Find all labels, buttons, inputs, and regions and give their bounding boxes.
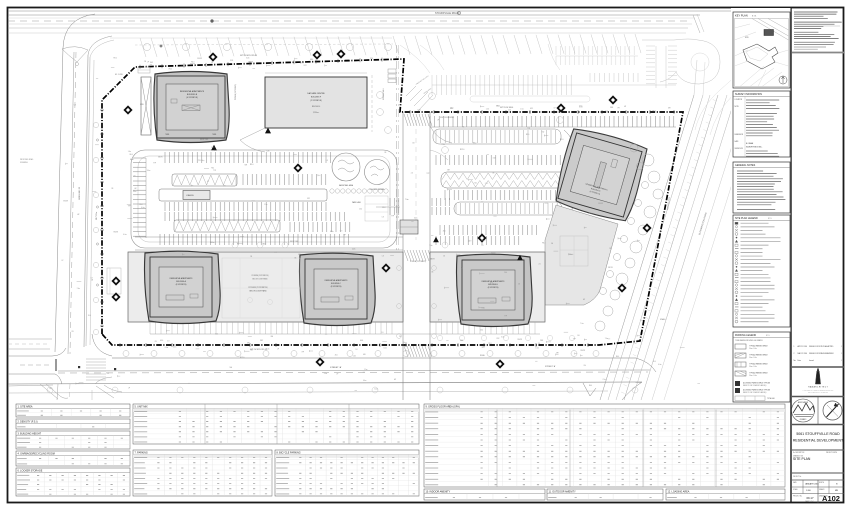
svg-text:CB: CB — [111, 188, 113, 190]
svg-text:BUILDING C: BUILDING C — [331, 283, 341, 285]
svg-text:LP: LP — [554, 108, 556, 110]
svg-text:22.6: 22.6 — [370, 58, 373, 60]
svg-text:TYP: TYP — [504, 315, 507, 317]
svg-text:R12: R12 — [304, 65, 307, 67]
svg-text:26.0: 26.0 — [211, 147, 214, 149]
svg-text:SNOW: SNOW — [197, 58, 202, 60]
svg-text:LP: LP — [277, 349, 279, 351]
svg-text:SNOW: SNOW — [158, 156, 163, 158]
svg-text:R9.0: R9.0 — [114, 58, 117, 60]
svg-text:SNOW: SNOW — [63, 201, 68, 203]
svg-text:2.6: 2.6 — [481, 245, 483, 247]
svg-text:TYP: TYP — [391, 216, 394, 218]
svg-text:LP: LP — [184, 66, 186, 68]
svg-text:TYP: TYP — [527, 128, 530, 130]
svg-text:FH: FH — [618, 108, 620, 110]
svg-text:R6.0: R6.0 — [589, 385, 592, 387]
svg-text:HP: HP — [624, 106, 626, 108]
svg-text:2.6m x 5.8m: 2.6m x 5.8m — [749, 348, 757, 350]
svg-text:TERR.: TERR. — [165, 134, 170, 136]
svg-text:2.6m x 5.8m: 2.6m x 5.8m — [749, 375, 757, 377]
svg-text:5.8: 5.8 — [167, 340, 169, 342]
svg-text:26.0: 26.0 — [482, 347, 485, 349]
svg-text:9. GROSS FLOOR AREA (GFA): 9. GROSS FLOOR AREA (GFA) — [426, 405, 460, 408]
svg-text:SURVEYING INC.: SURVEYING INC. — [746, 147, 763, 149]
svg-text:7. PARKING: 7. PARKING — [135, 451, 148, 454]
svg-text:FH: FH — [551, 243, 553, 245]
svg-text:No. DESCRIPTION: No. DESCRIPTION — [793, 452, 804, 454]
svg-text:SNOW: SNOW — [248, 62, 253, 64]
svg-text:26.0: 26.0 — [508, 110, 511, 112]
svg-text:26.0: 26.0 — [359, 209, 362, 211]
svg-text:5.8: 5.8 — [443, 255, 445, 257]
svg-text:HP: HP — [302, 352, 304, 354]
svg-text:SNOW: SNOW — [517, 339, 522, 341]
svg-text:34.2: 34.2 — [150, 62, 153, 64]
svg-text:HP: HP — [344, 235, 346, 237]
svg-text:1: 1 — [794, 346, 795, 348]
svg-text:MH: MH — [482, 355, 484, 357]
svg-text:R9.0: R9.0 — [560, 139, 563, 141]
svg-text:PROJECT No.: PROJECT No. — [793, 476, 802, 478]
svg-text:FIRE: FIRE — [140, 104, 144, 106]
svg-text:3. BUILDING HEIGHT: 3. BUILDING HEIGHT — [18, 432, 42, 435]
svg-text:R9.0: R9.0 — [542, 243, 545, 245]
svg-text:2.6m x 5.8m: 2.6m x 5.8m — [749, 357, 757, 359]
svg-text:R9.0: R9.0 — [473, 142, 476, 144]
svg-text:MH: MH — [496, 105, 498, 107]
svg-text:26.0m: 26.0m — [210, 242, 215, 244]
svg-text:12. LOADING AREA: 12. LOADING AREA — [668, 490, 690, 493]
svg-text:TYP: TYP — [153, 163, 156, 165]
svg-text:LP: LP — [62, 260, 64, 262]
svg-text:SHEET 1 OF 1: SHEET 1 OF 1 — [805, 501, 814, 503]
svg-text:HP: HP — [77, 214, 79, 216]
svg-text:STREET 'A': STREET 'A' — [545, 365, 556, 368]
svg-text:LP: LP — [107, 373, 109, 375]
svg-text:4. GARBAGE/RECYCLING ROOM: 4. GARBAGE/RECYCLING ROOM — [18, 452, 55, 455]
svg-text:(2 STOREYS): (2 STOREYS) — [310, 100, 322, 102]
svg-text:SITE: SITE — [745, 37, 749, 39]
svg-text:CB: CB — [91, 279, 93, 281]
svg-text:N72°10'E 188.6: N72°10'E 188.6 — [500, 107, 513, 109]
svg-text:1. SITE AREA: 1. SITE AREA — [18, 405, 33, 408]
svg-text:R6.0: R6.0 — [263, 244, 266, 246]
svg-text:MH: MH — [363, 354, 365, 356]
svg-text:HP: HP — [135, 188, 137, 190]
svg-text:R12.0: R12.0 — [460, 149, 464, 151]
svg-text:2: 2 — [794, 353, 795, 355]
svg-text:(4 STOREYS): (4 STOREYS) — [186, 97, 198, 99]
svg-text:#: # — [841, 360, 842, 362]
svg-text:R6.0: R6.0 — [653, 111, 656, 113]
svg-text:26.0: 26.0 — [88, 315, 91, 317]
svg-text:1:200: 1:200 — [806, 490, 811, 492]
svg-text:PODIUM (2 STOREYS): PODIUM (2 STOREYS) — [252, 275, 269, 277]
svg-text:R9.0: R9.0 — [526, 134, 529, 136]
svg-text:BUILDING B: BUILDING B — [187, 94, 198, 96]
svg-text:R A W A R C H I T E C T: R A W A R C H I T E C T — [808, 386, 828, 389]
svg-text:FH: FH — [578, 335, 580, 337]
svg-text:CB: CB — [294, 257, 296, 259]
svg-text:MH: MH — [668, 108, 670, 110]
svg-text:WIDENING: WIDENING — [20, 162, 28, 164]
svg-text:RESIDENTIAL APARTMENTS: RESIDENTIAL APARTMENTS — [325, 279, 349, 282]
svg-text:5.8: 5.8 — [326, 160, 328, 162]
svg-text:N72°18'40"E 285.33: N72°18'40"E 285.33 — [240, 55, 257, 57]
svg-text:MH: MH — [245, 164, 247, 166]
svg-text:E. RAE: E. RAE — [746, 142, 754, 145]
svg-text:MH: MH — [247, 343, 249, 345]
svg-text:R6.0: R6.0 — [616, 356, 619, 358]
svg-text:NORTH: NORTH — [819, 482, 824, 484]
svg-text:SITE PLAN: SITE PLAN — [793, 457, 811, 461]
svg-text:CB: CB — [155, 341, 157, 343]
svg-text:PROJECT No.: PROJECT No. — [793, 496, 803, 498]
svg-text:LP: LP — [437, 120, 439, 122]
svg-text:R6.0: R6.0 — [169, 68, 172, 70]
svg-text:(6 STOREYS): (6 STOREYS) — [176, 284, 187, 286]
svg-text:2.6: 2.6 — [411, 173, 413, 175]
svg-text:TYP: TYP — [213, 170, 216, 172]
svg-text:09.17: 09.17 — [807, 496, 814, 500]
svg-text:CB: CB — [462, 126, 464, 128]
svg-text:5061 STOUFFVILLE ROAD: 5061 STOUFFVILLE ROAD — [796, 432, 840, 436]
svg-text:CB: CB — [71, 331, 73, 333]
svg-text:BUILDING A: BUILDING A — [176, 280, 186, 283]
svg-text:TYP: TYP — [573, 338, 576, 340]
svg-text:5.8: 5.8 — [382, 255, 384, 257]
svg-text:R12: R12 — [542, 131, 545, 133]
svg-text:FH: FH — [584, 365, 586, 367]
svg-text:38.8: 38.8 — [610, 107, 613, 109]
svg-text:PODIUM (2 STOREYS): PODIUM (2 STOREYS) — [410, 261, 426, 263]
svg-text:5.8: 5.8 — [211, 62, 213, 64]
svg-text:5.8: 5.8 — [214, 150, 216, 152]
svg-text:5.8: 5.8 — [355, 349, 357, 351]
svg-text:5.8: 5.8 — [518, 283, 520, 285]
svg-text:MH: MH — [230, 367, 232, 369]
svg-text:RESIDENTIAL APARTMENTS: RESIDENTIAL APARTMENTS — [170, 277, 194, 280]
svg-text:TYP: TYP — [427, 173, 430, 175]
svg-text:42.1: 42.1 — [530, 108, 533, 110]
svg-text:HP: HP — [583, 299, 585, 301]
svg-text:RESIDENTIAL APARTMENTS: RESIDENTIAL APARTMENTS — [482, 280, 506, 283]
svg-text:RESIDENTIAL DEVELOPMENT: RESIDENTIAL DEVELOPMENT — [793, 439, 844, 443]
svg-text:NOTE: NOTE — [735, 106, 739, 108]
svg-text:26.0: 26.0 — [504, 272, 507, 274]
svg-text:LP: LP — [336, 373, 338, 375]
svg-text:PROJECT NORTH: PROJECT NORTH — [826, 452, 837, 454]
svg-text:N.T.S.: N.T.S. — [766, 335, 770, 337]
svg-text:CB: CB — [431, 272, 433, 274]
svg-text:(6 STOREYS): (6 STOREYS) — [488, 287, 499, 289]
svg-text:(6 STOREYS): (6 STOREYS) — [331, 286, 342, 288]
svg-text:SNOW: SNOW — [598, 203, 603, 205]
svg-text:R12.0: R12.0 — [240, 357, 244, 359]
svg-text:FFE 246.10: FFE 246.10 — [312, 106, 320, 108]
svg-text:LP: LP — [461, 268, 463, 270]
svg-text:26.0: 26.0 — [653, 361, 656, 363]
svg-text:TERR.: TERR. — [212, 134, 217, 136]
svg-text:N.T.S.: N.T.S. — [752, 16, 757, 18]
svg-text:R9.0: R9.0 — [382, 207, 385, 209]
svg-text:SNOW: SNOW — [608, 267, 613, 269]
svg-text:30.5: 30.5 — [450, 108, 453, 110]
svg-text:N17°20'w: N17°20'w — [96, 211, 98, 220]
svg-text:DAYCARE CENTRE: DAYCARE CENTRE — [307, 92, 325, 95]
svg-text:GENERAL NOTES: GENERAL NOTES — [735, 164, 756, 167]
svg-text:R12: R12 — [497, 338, 500, 340]
svg-text:TYP: TYP — [128, 206, 131, 208]
svg-text:A102: A102 — [822, 494, 840, 503]
svg-text:STREET 'A': STREET 'A' — [330, 366, 342, 369]
svg-text:PARKING LEGEND: PARKING LEGEND — [735, 334, 756, 337]
svg-text:SNOW: SNOW — [430, 259, 435, 261]
svg-text:SITE PLAN LEGEND: SITE PLAN LEGEND — [735, 217, 758, 220]
svg-text:28.8: 28.8 — [540, 340, 543, 342]
svg-text:11. OUTDOOR AMENITY: 11. OUTDOOR AMENITY — [549, 490, 577, 493]
svg-text:SNOW: SNOW — [113, 231, 118, 233]
svg-text:DROP OFF: DROP OFF — [200, 139, 208, 141]
svg-text:N.T.S.: N.T.S. — [768, 218, 772, 220]
svg-text:JANUARY 2016: JANUARY 2016 — [805, 483, 819, 486]
svg-text:5.8: 5.8 — [74, 105, 76, 107]
svg-text:TYP: TYP — [605, 111, 608, 113]
svg-text:38.2: 38.2 — [260, 340, 263, 342]
svg-text:40.6: 40.6 — [360, 340, 363, 342]
svg-text:CB: CB — [384, 152, 386, 154]
svg-text:FH: FH — [50, 388, 52, 390]
svg-text:R9.0: R9.0 — [250, 164, 253, 166]
svg-text:48.0: 48.0 — [310, 59, 313, 61]
svg-text:6. LOCKER STORAGE: 6. LOCKER STORAGE — [18, 469, 43, 472]
svg-text:10. INDOOR AMENITY: 10. INDOOR AMENITY — [426, 490, 451, 493]
svg-text:BUILDING E: BUILDING E — [488, 284, 498, 286]
svg-text:5.8: 5.8 — [382, 217, 384, 219]
svg-text:KEY PLAN: KEY PLAN — [735, 14, 748, 18]
svg-text:2.6: 2.6 — [381, 332, 383, 334]
svg-text:5. UNIT MIX: 5. UNIT MIX — [135, 405, 149, 408]
svg-text:SURVEYOR: SURVEYOR — [735, 148, 744, 150]
svg-text:DROP OFF: DROP OFF — [290, 241, 298, 243]
svg-text:8. BICYCLE PARKING: 8. BICYCLE PARKING — [277, 451, 301, 454]
svg-text:MH: MH — [271, 336, 273, 338]
svg-text:R12: R12 — [307, 198, 310, 200]
svg-text:CB: CB — [133, 176, 135, 178]
svg-text:LP: LP — [207, 181, 209, 183]
svg-text:CB: CB — [399, 336, 401, 338]
svg-text:36.4: 36.4 — [460, 340, 463, 342]
svg-text:TYP: TYP — [274, 252, 277, 254]
svg-text:BUILDING F: BUILDING F — [311, 97, 322, 99]
svg-text:R6.0: R6.0 — [191, 62, 194, 64]
svg-text:#: # — [841, 346, 842, 348]
svg-text:DIMENSION: DIMENSION — [735, 134, 744, 136]
svg-text:FH: FH — [223, 185, 225, 187]
svg-text:MH: MH — [556, 353, 558, 355]
svg-text:CB: CB — [250, 256, 252, 258]
svg-text:26.0: 26.0 — [335, 355, 338, 357]
svg-text:SIDELINE 26: SIDELINE 26 — [79, 186, 81, 200]
svg-text:SURVEY INFORMATION: SURVEY INFORMATION — [735, 93, 762, 96]
svg-text:R9.0: R9.0 — [139, 204, 142, 206]
svg-text:#: # — [841, 353, 842, 355]
svg-text:LP: LP — [128, 388, 130, 390]
svg-text:26.0: 26.0 — [480, 330, 483, 332]
svg-text:RESIDENTIAL APARTMENTS: RESIDENTIAL APARTMENTS — [180, 90, 205, 93]
svg-text:SNOW: SNOW — [580, 350, 585, 352]
svg-text:Issued: Issued — [809, 360, 814, 362]
svg-text:5.8: 5.8 — [91, 278, 93, 280]
svg-text:LOADING: LOADING — [186, 194, 194, 197]
svg-text:LP: LP — [147, 61, 149, 63]
svg-text:2.6: 2.6 — [539, 263, 541, 265]
svg-text:2. DENSITY (F.S.I): 2. DENSITY (F.S.I) — [18, 420, 38, 423]
svg-text:CB: CB — [492, 173, 494, 175]
svg-text:45.0: 45.0 — [160, 340, 163, 342]
svg-text:STOUFFVILLE ROAD: STOUFFVILLE ROAD — [435, 12, 459, 15]
svg-text:PODIUM (2 STOREYS): PODIUM (2 STOREYS) — [235, 84, 237, 100]
svg-text:MH: MH — [447, 170, 449, 172]
svg-text:MH: MH — [298, 254, 300, 256]
svg-text:2.6: 2.6 — [538, 343, 540, 345]
svg-text:HP: HP — [394, 379, 396, 381]
svg-text:BELOW COURTYARD: BELOW COURTYARD — [249, 290, 267, 293]
svg-text:EX. CURB: EX. CURB — [115, 74, 123, 76]
svg-text:R6.0: R6.0 — [589, 213, 592, 215]
svg-text:26.0: 26.0 — [443, 231, 446, 233]
svg-text:CB: CB — [609, 248, 611, 250]
svg-text:CB: CB — [144, 61, 146, 63]
svg-text:R6.0: R6.0 — [130, 154, 133, 156]
svg-text:26.0: 26.0 — [215, 334, 218, 336]
svg-text:2.6m x 5.8m: 2.6m x 5.8m — [749, 366, 757, 368]
svg-text:51.8: 51.8 — [230, 60, 233, 62]
svg-text:CB: CB — [412, 142, 414, 144]
svg-text:R12: R12 — [211, 167, 214, 169]
